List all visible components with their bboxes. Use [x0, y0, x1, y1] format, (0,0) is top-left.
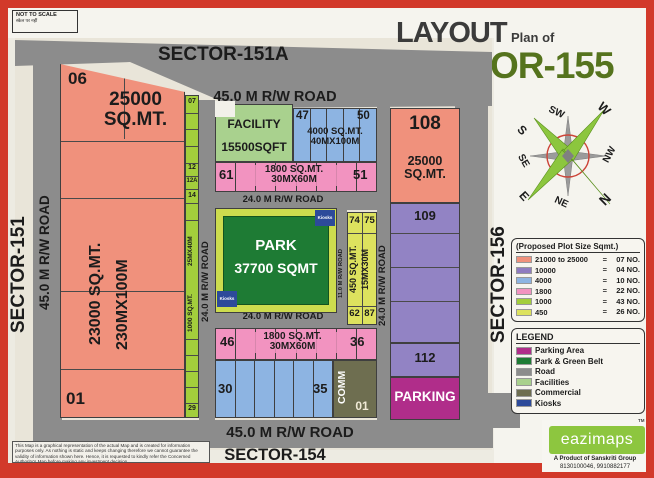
strip450-divider — [348, 233, 376, 234]
strip450-divider — [348, 306, 376, 307]
blue-cell — [255, 361, 275, 417]
legend-plot-sizes: (Proposed Plot Size Sqmt.) 21000 to 2500… — [511, 238, 645, 322]
plot-divider — [391, 301, 459, 302]
legend-row: Road — [516, 367, 640, 376]
eazimaps-logo-text: eazimaps — [561, 432, 633, 449]
commercial-number: 01 — [352, 400, 372, 412]
pink-bottom-area: 1800 SQ.MT. 30MX60M — [245, 332, 340, 353]
plot-01-left-label: 01 — [66, 390, 85, 408]
pink-top-area: 1800 SQ.MT. 30MX60M — [248, 165, 340, 186]
plot-87-label: 87 — [362, 309, 377, 319]
legend-plot-sizes-title: (Proposed Plot Size Sqmt.) — [516, 242, 640, 253]
disclaimer-text: This Map is a graphical representation o… — [15, 443, 207, 463]
commercial-label: COMM — [337, 364, 351, 404]
park-name: PARK — [223, 238, 329, 254]
legend-label: 450 — [535, 308, 600, 317]
plot-112-label: 112 — [405, 351, 445, 365]
strip-divider — [186, 189, 198, 190]
strip450-dim: 15MX30M — [361, 235, 373, 303]
legend-eq: = — [603, 287, 607, 295]
plot-14-label: 14 — [185, 192, 199, 199]
facility-notch — [215, 101, 235, 117]
color-swatch — [516, 378, 532, 386]
plot-divider — [61, 141, 184, 142]
plot-109-block — [390, 203, 460, 343]
legend-eq: = — [603, 308, 607, 316]
legend-row: 10000 = 04 NO. — [516, 266, 640, 275]
strip-divider — [186, 113, 198, 114]
strip-divider — [186, 339, 198, 340]
legend-label: Kiosks — [535, 399, 640, 408]
plot-divider — [61, 369, 184, 370]
strip-dim-label: 25MX40M — [188, 225, 197, 277]
legend-label: Road — [535, 367, 640, 376]
kiosk-bottom: Kiosks — [217, 291, 237, 307]
plot-47-label: 47 — [296, 111, 309, 123]
strip-divider — [186, 371, 198, 372]
plot-46-label: 46 — [220, 335, 234, 349]
facility-name: FACILITY — [215, 118, 293, 130]
strip-divider — [186, 176, 198, 177]
plot-74-label: 74 — [347, 216, 362, 226]
facility-area: 15500SQFT — [215, 141, 293, 153]
plot-07-label: 07 — [185, 98, 199, 105]
road-label-24m-vright: 24.0 M R/W ROAD — [378, 232, 390, 340]
legend-main: LEGEND Parking Area Park & Green Belt Ro… — [511, 328, 645, 414]
legend-row: Commercial — [516, 388, 640, 397]
sector-156-label: SECTOR-156 — [489, 183, 511, 343]
legend-row: Facilities — [516, 378, 640, 387]
not-to-scale-box: NOT TO SCALE स्केल पर नहीं — [12, 10, 78, 33]
strip-divider — [186, 403, 198, 404]
legend-row: 450 = 26 NO. — [516, 308, 640, 317]
color-swatch — [516, 357, 532, 365]
road-label-45m-left: 45.0 M R/W ROAD — [38, 145, 59, 360]
color-swatch — [516, 298, 532, 305]
kiosk-top: Kiosks — [315, 210, 335, 226]
legend-label: 21000 to 25000 — [535, 255, 600, 264]
kiosk-top-label: Kiosks — [318, 216, 333, 221]
legend-eq: = — [603, 256, 607, 264]
legend-count: 10 NO. — [610, 277, 640, 285]
road-label-11m: 11.0 M R/W ROAD — [338, 238, 347, 310]
strip-divider — [186, 146, 198, 147]
color-swatch — [516, 256, 532, 263]
plot-62-label: 62 — [347, 309, 362, 319]
plot-06-label: 06 — [68, 70, 87, 88]
legend-count: 22 NO. — [610, 287, 640, 295]
plot-12-label: 12 — [185, 164, 199, 171]
plot-50-label: 50 — [357, 111, 370, 123]
color-swatch — [516, 347, 532, 355]
disclaimer-box: This Map is a graphical representation o… — [12, 441, 210, 463]
legend-count: 43 NO. — [610, 298, 640, 306]
eazimaps-logo: eazimaps — [549, 426, 645, 454]
plot-36-label: 36 — [350, 335, 364, 349]
strip-divider — [186, 355, 198, 356]
road-label-24m-vleft: 24.0 M R/W ROAD — [201, 228, 214, 336]
road-label-24m-bottom: 24.0 M R/W ROAD — [228, 312, 338, 322]
legend-label: Park & Green Belt — [535, 357, 640, 366]
legend-row: 1000 = 43 NO. — [516, 297, 640, 306]
plot-108-label: 108 — [396, 114, 454, 134]
plot-29-label: 29 — [185, 405, 199, 412]
legend-row: Park & Green Belt — [516, 357, 640, 366]
parking-label: PARKING — [390, 390, 460, 404]
road-label-24m-top: 24.0 M R/W ROAD — [228, 195, 338, 205]
plot-108-area: 25000 SQ.MT. — [396, 155, 454, 181]
legend-eq: = — [603, 298, 607, 306]
sector-151a-label: SECTOR-151A — [158, 45, 328, 65]
strip-divider — [186, 387, 198, 388]
color-swatch — [516, 309, 532, 316]
legend-row: 1800 = 22 NO. — [516, 287, 640, 296]
plot-75-label: 75 — [362, 216, 377, 226]
eazimaps-tm: TM — [638, 419, 645, 424]
color-swatch — [516, 368, 532, 376]
plot-23000-dim: 230MX100M — [115, 205, 135, 350]
blue-cell — [275, 361, 295, 417]
legend-label: 10000 — [535, 266, 600, 275]
legend-label: 1000 — [535, 297, 600, 306]
color-swatch — [516, 267, 532, 274]
plot-divider — [61, 198, 184, 199]
legend-row: 4000 = 10 NO. — [516, 276, 640, 285]
branding-phone: 8130100046, 9910882177 — [543, 464, 647, 470]
strip-divider — [186, 129, 198, 130]
legend-row: Parking Area — [516, 346, 640, 355]
sector-151-label: SECTOR-151 — [9, 168, 31, 333]
legend-label: Facilities — [535, 378, 640, 387]
legend-label: Parking Area — [535, 346, 640, 355]
plot-divider — [391, 267, 459, 268]
legend-eq: = — [603, 277, 607, 285]
plot-109-label: 109 — [405, 209, 445, 223]
layout-map-canvas: NOT TO SCALE स्केल पर नहीं LAYOUT Plan o… — [0, 0, 654, 478]
plot-06-area: 25000 SQ.MT. — [88, 90, 183, 130]
strip-divider — [186, 220, 198, 221]
compass-rose: S SW W SE NW E NE N — [516, 98, 620, 220]
title-plan-of: Plan of — [511, 30, 554, 45]
legend-count: 07 NO. — [610, 256, 640, 264]
plot-51-label: 51 — [353, 168, 367, 182]
color-swatch — [516, 277, 532, 284]
legend-main-title: LEGEND — [516, 332, 640, 344]
road-label-45m-bottom: 45.0 M R/W ROAD — [195, 425, 385, 441]
color-swatch — [516, 288, 532, 295]
blue-top-area: 4000 SQ.MT. 40MX100M — [291, 127, 379, 147]
blue-cell — [294, 361, 314, 417]
color-swatch — [516, 389, 532, 397]
legend-row: Kiosks — [516, 399, 640, 408]
legend-label: 1800 — [535, 287, 600, 296]
plot-divider — [391, 233, 459, 234]
legend-label: Commercial — [535, 388, 640, 397]
legend-label: 4000 — [535, 276, 600, 285]
blue-cell — [236, 361, 256, 417]
strip-divider — [186, 203, 198, 204]
legend-eq: = — [603, 266, 607, 274]
legend-count: 26 NO. — [610, 308, 640, 316]
park-area: 37700 SQMT — [223, 261, 329, 276]
legend-row: 21000 to 25000 = 07 NO. — [516, 255, 640, 264]
plot-30-label: 30 — [218, 382, 232, 396]
kiosk-bottom-label: Kiosks — [220, 297, 235, 302]
not-to-scale-subtext: स्केल पर नहीं — [16, 19, 74, 24]
sector-154-label: SECTOR-154 — [210, 447, 340, 464]
plot-35-label: 35 — [313, 382, 327, 396]
branding-byline: A Product of Sanskriti Group — [543, 456, 647, 462]
plot-12a-label: 12A — [185, 178, 199, 184]
color-swatch — [516, 399, 532, 407]
plot-61-label: 61 — [219, 168, 233, 182]
strip-area-label: 1000 SQ.MT. — [188, 287, 197, 339]
plot-23000-area: 23000 SQ.MT. — [88, 200, 108, 345]
legend-count: 04 NO. — [610, 266, 640, 274]
